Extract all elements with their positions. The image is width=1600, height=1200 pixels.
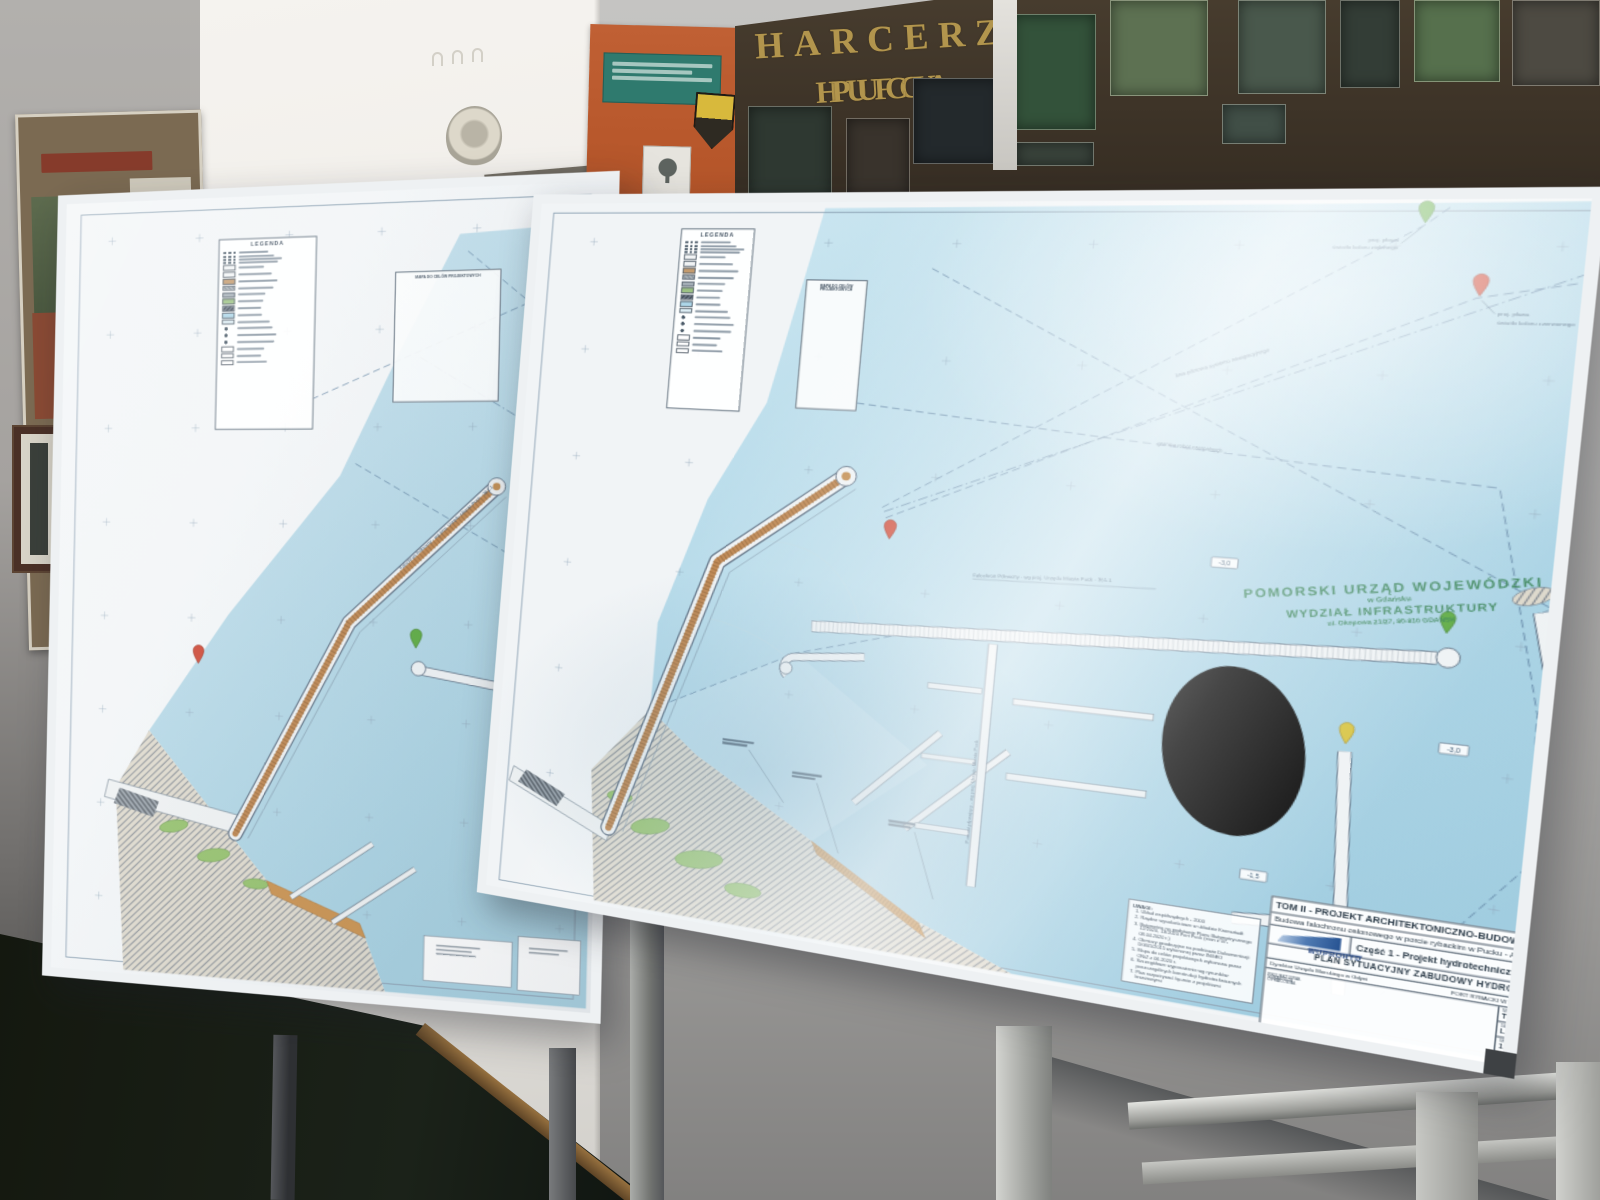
- map-note-box: MAPA DO CELÓW PROJEKTOWYCH: [795, 279, 868, 411]
- legend-row: [221, 352, 279, 358]
- easel-leg: [271, 1035, 298, 1200]
- easel-leg: [1556, 1062, 1600, 1200]
- easel-leg: [1416, 1092, 1478, 1200]
- legend-row: [682, 274, 742, 280]
- legend-row: [222, 311, 280, 318]
- harcerze-banner: HARCERZE HUFCAPUCK: [735, 0, 1600, 218]
- legend-row: [684, 251, 743, 253]
- easel-leg: [996, 1026, 1052, 1200]
- map-note-title: MAPA DO CELÓW PROJEKTOWYCH: [399, 273, 497, 280]
- wall-hook: [432, 52, 443, 66]
- legend-row: [683, 268, 743, 274]
- legend-box: LEGENDA: [215, 236, 317, 430]
- banner-word-puck: PUCK: [831, 67, 945, 110]
- legend-row: [221, 359, 279, 365]
- legend-row: [679, 308, 739, 315]
- svg-text:proj. pława: proj. pława: [1368, 236, 1400, 242]
- map-note-box: MAPA DO CELÓW PROJEKTOWYCH: [392, 269, 501, 403]
- legend-row: [676, 348, 735, 355]
- legend-row: [222, 291, 280, 298]
- legend-row: [680, 301, 740, 308]
- scout-crest-icon: [692, 92, 736, 151]
- legend-row: [681, 288, 741, 294]
- wall-hook: [452, 50, 463, 64]
- picture-image: [30, 443, 48, 555]
- legend-row: [683, 261, 743, 267]
- legend-row: [685, 245, 744, 247]
- svg-text:światło koloru zielonego: światło koloru zielonego: [1332, 243, 1399, 250]
- legend-row: [222, 298, 280, 305]
- legend-row: [222, 318, 280, 325]
- plaque-emblem-icon: [655, 157, 680, 188]
- map-note-title: MAPA DO CELÓW PROJEKTOWYCH: [810, 283, 864, 292]
- legend-row: [685, 248, 744, 250]
- legend-row: [684, 254, 744, 260]
- svg-text:-3,0: -3,0: [1218, 560, 1231, 568]
- legend-title: LEGENDA: [223, 240, 312, 249]
- legend-row: [222, 305, 280, 312]
- legend-row: [222, 325, 280, 332]
- legend-row: [679, 314, 739, 321]
- easel-leg: [549, 1048, 576, 1200]
- small-plaque: [642, 145, 691, 200]
- legend-row: [221, 339, 279, 346]
- legend-row: [685, 242, 744, 244]
- legend-row: [221, 345, 279, 352]
- banner-title: HARCERZE HUFCAPUCK: [754, 7, 1077, 79]
- poster-title-bar: [41, 151, 153, 172]
- svg-text:proj. pława: proj. pława: [1497, 311, 1531, 318]
- legend-row: [222, 332, 280, 339]
- legend-row: [680, 294, 740, 301]
- wall-hook: [472, 48, 483, 62]
- wall-divider: [993, 0, 1017, 170]
- legend-title: LEGENDA: [685, 232, 749, 238]
- depth-tag: -3,0: [1211, 557, 1239, 569]
- legend-row: [681, 281, 741, 287]
- exhibition-room-photo: HARCERZE HUFCAPUCK: [0, 0, 1600, 1200]
